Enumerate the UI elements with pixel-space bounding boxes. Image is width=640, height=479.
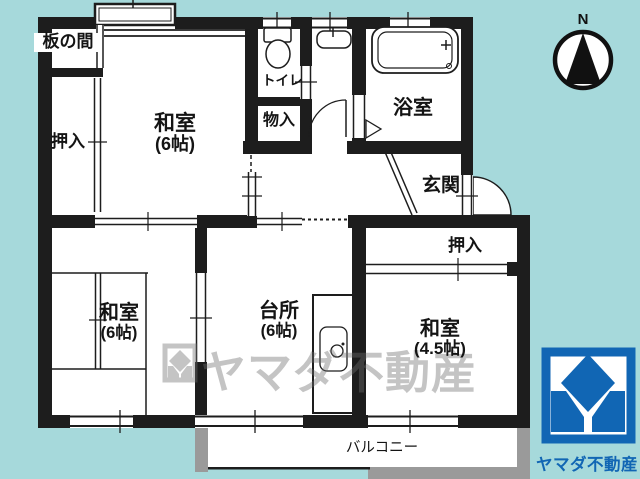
room-label-oshiire-top-left: 押入 xyxy=(40,133,96,152)
room-label-washitsu-bottom-left: 和室 (6帖) xyxy=(70,302,168,342)
room-label-oshiire-right: 押入 xyxy=(437,237,493,256)
room-label-toilet: トイレ xyxy=(262,74,302,89)
room-label-genkan: 玄関 xyxy=(414,176,468,197)
room-label-itanoma: 板の間 xyxy=(34,33,102,52)
room-label-kitchen: 台所 (6帖) xyxy=(230,300,328,340)
room-label-balcony: バルコニー xyxy=(337,441,427,457)
room-label-washitsu-top: 和室 (6帖) xyxy=(125,112,225,155)
brand-logo-text: ヤマダ不動産 xyxy=(533,451,640,475)
bathtub-icon xyxy=(372,27,458,73)
toilet-icon xyxy=(264,28,291,68)
room-label-washitsu-right: 和室 (4.5帖) xyxy=(392,318,488,359)
room-label-washitsu-top-name: 和室 xyxy=(125,112,225,135)
room-label-bathroom: 浴室 xyxy=(385,97,441,119)
floor-plan-graphics xyxy=(0,0,640,479)
room-label-kitchen-size: (6帖) xyxy=(230,322,328,340)
floor-plan-page: ヤマダ不動産 板の間 押入 和室 (6帖) トイレ 物入 浴室 玄関 押入 和室… xyxy=(0,0,640,479)
room-label-washitsu-bl-size: (6帖) xyxy=(70,324,168,342)
room-label-washitsu-right-size: (4.5帖) xyxy=(392,340,488,359)
compass-icon xyxy=(555,32,611,88)
room-label-kitchen-name: 台所 xyxy=(230,300,328,322)
room-label-washitsu-bl-name: 和室 xyxy=(70,302,168,324)
bay-window xyxy=(95,0,175,25)
room-label-washitsu-right-name: 和室 xyxy=(392,318,488,340)
room-label-washitsu-top-size: (6帖) xyxy=(125,135,225,155)
room-label-monoire: 物入 xyxy=(254,112,304,130)
brand-logo-icon xyxy=(546,352,631,439)
compass-north-label: N xyxy=(570,11,596,28)
